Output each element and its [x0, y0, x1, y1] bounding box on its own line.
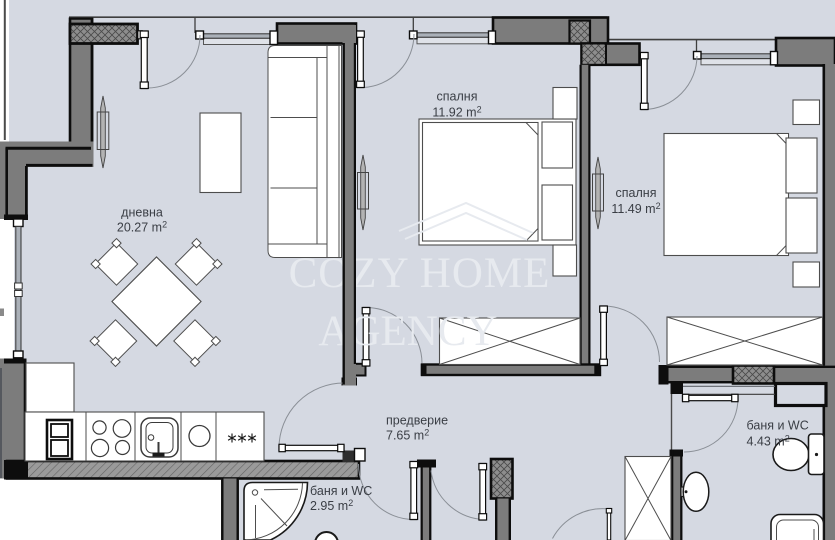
svg-text:11.49 m2: 11.49 m2: [611, 201, 660, 216]
svg-text:20.27 m2: 20.27 m2: [117, 220, 167, 235]
svg-text:спалня: спалня: [616, 186, 657, 200]
svg-text:предверие: предверие: [386, 414, 448, 428]
svg-text:баня и WC: баня и WC: [310, 484, 372, 498]
svg-text:спалня: спалня: [437, 90, 478, 104]
svg-text:COZY HOME: COZY HOME: [289, 250, 551, 297]
svg-text:11.92 m2: 11.92 m2: [432, 105, 481, 120]
svg-text:2.95 m2: 2.95 m2: [310, 498, 353, 513]
svg-text:дневна: дневна: [121, 206, 163, 220]
svg-text:7.65 m2: 7.65 m2: [386, 428, 429, 443]
svg-text:баня и WC: баня и WC: [747, 419, 809, 433]
svg-text:4.43 m2: 4.43 m2: [747, 434, 790, 449]
